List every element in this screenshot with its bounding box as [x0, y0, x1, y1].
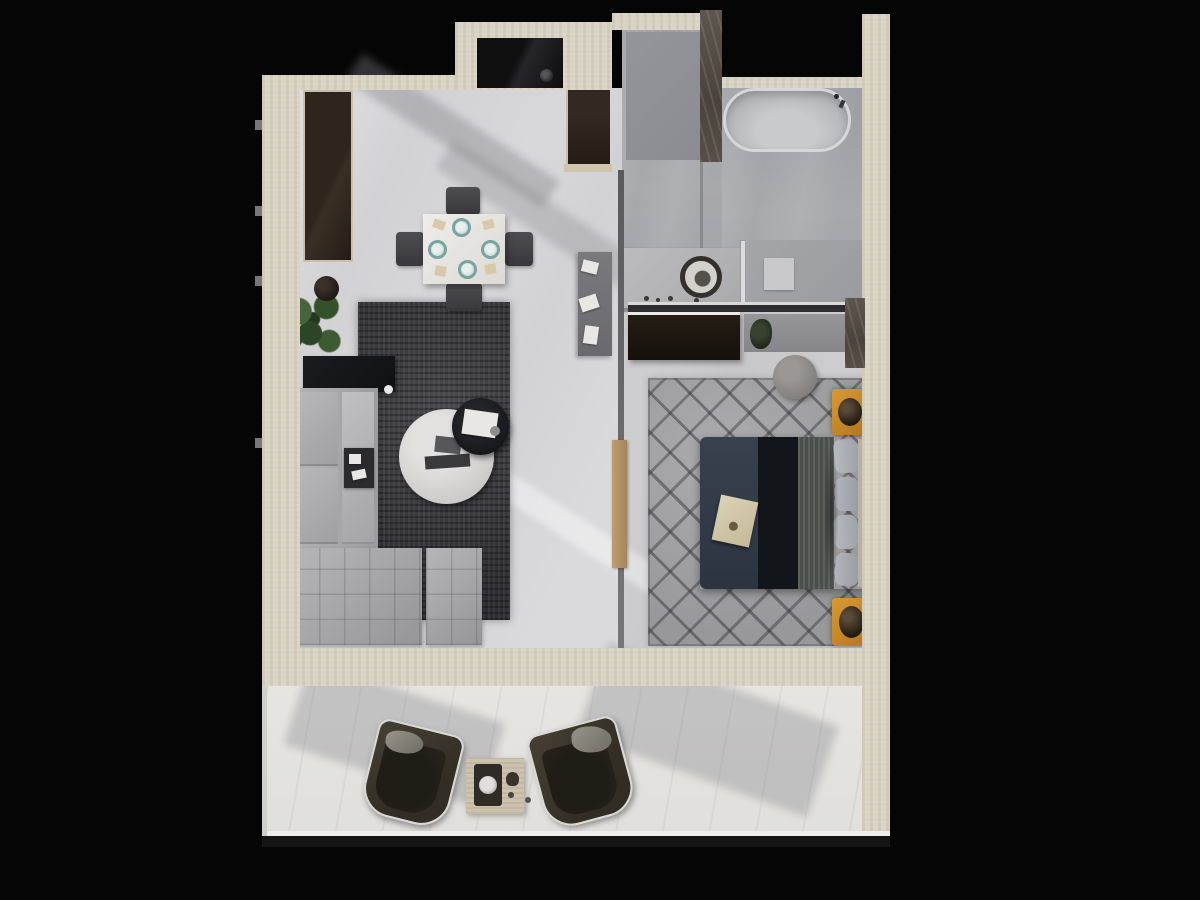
floor-object	[525, 797, 531, 803]
vessel-sink	[680, 256, 722, 298]
dining-chair-left	[396, 232, 424, 266]
wall-tick	[255, 206, 262, 216]
plate	[452, 218, 471, 237]
plant-pot	[314, 276, 339, 301]
napkin	[434, 265, 447, 277]
kitchen-block	[477, 38, 563, 88]
dining-chair-right	[505, 232, 533, 266]
wardrobe	[303, 90, 353, 262]
shower-floor	[626, 32, 700, 160]
teapot	[506, 772, 519, 786]
bed-pillows	[834, 437, 860, 589]
floor-plan-render	[0, 0, 1200, 900]
napkin	[432, 218, 446, 231]
dining-chair-top	[446, 187, 480, 215]
pouf	[773, 355, 817, 399]
shower-marble-partition	[700, 10, 722, 162]
glass-line	[700, 162, 703, 250]
sofa-cushion	[298, 392, 338, 466]
plate	[428, 240, 447, 259]
plate	[481, 240, 500, 259]
balcony-left-rail	[262, 686, 267, 836]
sofa-chaise	[294, 548, 422, 645]
cup	[384, 385, 393, 394]
faucet-dot	[668, 296, 673, 301]
dresser	[628, 312, 740, 360]
paper	[583, 325, 599, 345]
coffee-table-black	[452, 398, 509, 455]
dining-chair-bottom	[446, 283, 482, 311]
wall-top-left	[262, 75, 462, 90]
wall-tick	[255, 438, 262, 448]
paper	[578, 294, 599, 313]
plate	[479, 776, 497, 794]
bathtub	[723, 88, 851, 152]
table-runner	[425, 453, 471, 469]
wall-top-right	[710, 77, 866, 88]
plate	[458, 260, 477, 279]
vase	[839, 606, 864, 638]
bathroom-bedroom-wall	[628, 305, 862, 312]
remote	[351, 469, 367, 481]
paper	[581, 259, 599, 275]
shower-mat	[764, 258, 794, 290]
pillow	[834, 477, 859, 512]
wall-tick	[255, 276, 262, 286]
sofa-ottoman	[426, 548, 482, 645]
pillow	[834, 552, 860, 586]
bed-duvet-dark	[758, 437, 798, 589]
bowl	[490, 426, 500, 436]
sofa-cushion	[298, 468, 338, 544]
sofa-tray	[344, 448, 374, 488]
wall-balcony	[262, 648, 890, 686]
entry-door	[566, 90, 610, 168]
door-threshold	[564, 164, 612, 172]
desk	[578, 252, 612, 356]
wall-marble-notch	[845, 298, 865, 368]
tea-tray	[474, 764, 502, 806]
wall-tick	[255, 120, 262, 130]
console-plant	[750, 319, 772, 349]
cup	[508, 792, 514, 798]
dining-table	[423, 214, 505, 284]
wall-top-hall	[612, 13, 710, 30]
vase	[838, 398, 862, 426]
wall-left	[262, 75, 300, 686]
balcony-side-table	[466, 758, 524, 814]
tub-faucet	[834, 94, 839, 99]
console-table	[303, 356, 395, 392]
balcony-bottom-rail	[262, 836, 890, 847]
remote	[349, 454, 361, 464]
kitchen-sink	[540, 69, 553, 82]
wall-right	[862, 14, 890, 838]
faucet-dot	[644, 296, 649, 301]
tray-cup	[728, 521, 739, 532]
napkin	[484, 263, 496, 274]
corridor-wall	[618, 170, 624, 650]
pillow-shadow	[824, 447, 838, 579]
napkin	[482, 219, 495, 231]
vanity-counter	[622, 248, 742, 308]
bedroom-door	[612, 440, 627, 568]
